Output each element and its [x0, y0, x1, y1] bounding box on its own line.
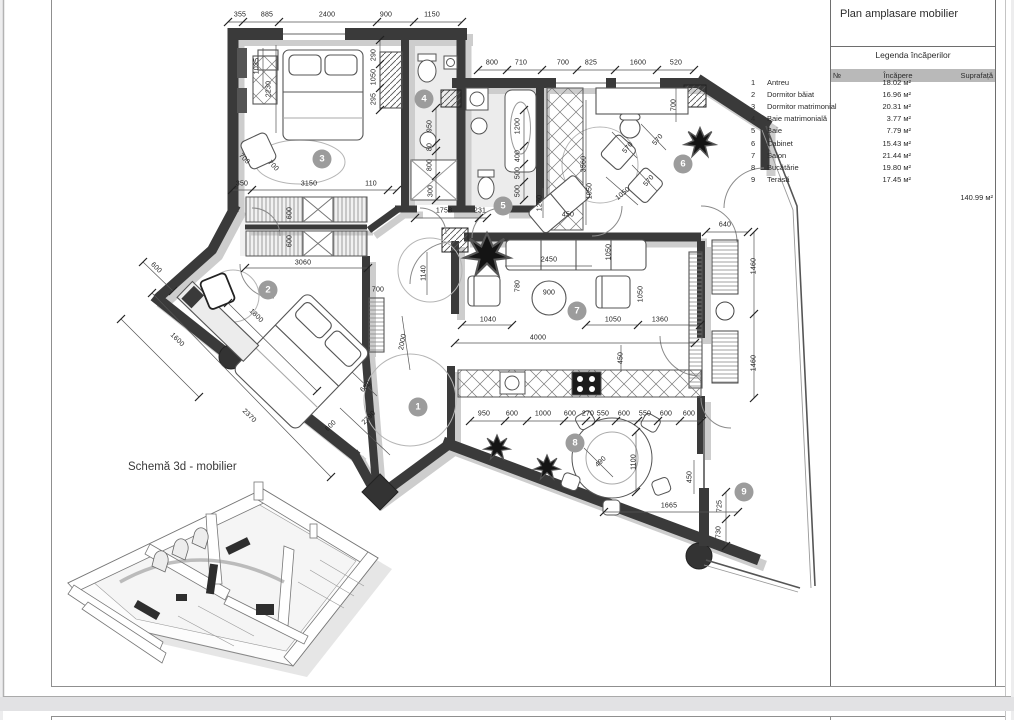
legend-row-area: 20.31 м² [865, 102, 911, 111]
legend-row: 8 Bucătărie 19.80 м² [749, 161, 913, 173]
legend-row-no: 1 [751, 78, 767, 87]
dimension-label: 1050 [638, 286, 645, 302]
dimension-label: 570 [642, 174, 655, 188]
legend-row: 4 Baie matrimonială 3.77 м² [749, 112, 913, 124]
schema-3d-label: Schemă 3d - mobilier [128, 461, 237, 473]
dimension-label: 600 [683, 411, 695, 418]
legend-row-name: Cabinet [767, 138, 865, 147]
dimension-label: 700 [372, 287, 384, 294]
dimension-label: 1050 [606, 244, 613, 260]
dimension-label: 1050 [371, 69, 378, 85]
dimension-label: 1050 [587, 183, 594, 199]
dimension-label: 2230 [266, 81, 273, 97]
dimension-label: 1040 [480, 317, 496, 324]
pdf-viewer-stage: Plan amplasare mobilier Legenda încăperi… [0, 0, 1014, 720]
legend-row-area: 18.02 м² [865, 78, 911, 87]
dimension-label: 450 [687, 471, 694, 483]
dimension-label: 350 [236, 181, 248, 188]
dimension-label: 2370 [241, 408, 258, 425]
dimension-label: 355 [234, 12, 246, 19]
dimension-label: 1140 [421, 265, 428, 281]
dimension-label: 80 [427, 143, 434, 151]
dimension-label: 1035 [254, 58, 261, 74]
sheet-title: Plan amplasare mobilier [840, 8, 958, 20]
room-number-marker: 4 [415, 90, 434, 109]
text-overlay: Plan amplasare mobilier Legenda încăperi… [0, 0, 1014, 720]
dimension-label: 110 [365, 181, 377, 188]
dimension-label: 2450 [541, 257, 557, 264]
dimension-label: 600 [618, 411, 630, 418]
legend-row-name: Baie matrimonială [767, 114, 865, 123]
dimension-label: 600 [324, 419, 338, 433]
legend-panel: Legenda încăperilor № Încăpere Suprafață… [831, 50, 995, 204]
legend-row-name: Salon [767, 151, 865, 160]
dimension-label: 730 [716, 526, 723, 538]
dimension-label: 1150 [424, 12, 440, 19]
dimension-label: 490 [594, 455, 608, 469]
legend-row-no: 8 [751, 163, 767, 172]
room-number-marker: 6 [674, 155, 693, 174]
legend-row: 1 Antreu 18.02 м² [749, 76, 913, 88]
dimension-label: 710 [515, 60, 527, 67]
dimension-label: 4000 [530, 335, 546, 342]
dimension-label: 680 [359, 380, 373, 394]
dimension-label: 300 [428, 185, 435, 197]
legend-row-name: Terasă [767, 175, 865, 184]
legend-row-no: 3 [751, 102, 767, 111]
dimension-label: 1460 [751, 355, 758, 371]
dimension-label: 700 [237, 152, 251, 166]
dimension-label: 600 [564, 411, 576, 418]
legend-row-name: Dormitor băiat [767, 90, 865, 99]
dimension-label: 500 [515, 167, 522, 179]
dimension-label: 570 [651, 133, 664, 147]
dimension-label: 3060 [295, 260, 311, 267]
dimension-label: 1280 [537, 195, 544, 211]
dimension-label: 2400 [319, 12, 335, 19]
dimension-label: 1758 [436, 208, 452, 215]
legend-col-area: Suprafață [947, 71, 993, 80]
dimension-label: 1600 [169, 332, 186, 349]
legend-row-name: Baie [767, 126, 865, 135]
dimension-label: 270 [582, 411, 594, 418]
dimension-label: 900 [380, 12, 392, 19]
room-number-marker: 1 [409, 398, 428, 417]
dimension-label: 400 [515, 150, 522, 162]
room-number-marker: 8 [566, 434, 585, 453]
dimension-label: 450 [562, 212, 574, 219]
room-number-marker: 2 [259, 281, 278, 300]
dimension-label: 570 [621, 141, 634, 155]
legend-row-area: 17.45 м² [865, 175, 911, 184]
dimension-label: 2390 [361, 410, 378, 427]
legend-row-area: 16.96 м² [865, 90, 911, 99]
legend-row-area: 21.44 м² [865, 151, 911, 160]
legend-subtitle: Legenda încăperilor [831, 50, 995, 60]
dimension-label: 885 [261, 12, 273, 19]
dimension-label: 825 [585, 60, 597, 67]
dimension-label: 900 [543, 290, 555, 297]
legend-row-name: Antreu [767, 78, 865, 87]
legend-row-no: 5 [751, 126, 767, 135]
legend-row: 5 Baie 7.79 м² [749, 125, 913, 137]
legend-row: 3 Dormitor matrimonial 20.31 м² [749, 100, 913, 112]
dimension-label: 1000 [535, 411, 551, 418]
legend-row-area: 15.43 м² [865, 138, 911, 147]
legend-row-no: 9 [751, 175, 767, 184]
dimension-label: 700 [671, 99, 678, 111]
legend-row-no: 4 [751, 114, 767, 123]
legend-row-no: 6 [751, 138, 767, 147]
legend-total-value: 140.99 м² [947, 193, 993, 202]
dimension-label: 1460 [751, 258, 758, 274]
legend-row-area: 19.80 м² [865, 163, 911, 172]
dimension-label: 3150 [301, 181, 317, 188]
dimension-label: 700 [266, 159, 280, 173]
legend-total-row: 140.99 м² [831, 192, 995, 204]
legend-row: 9 Terasă 17.45 м² [749, 173, 913, 185]
dimension-label: 450 [618, 352, 625, 364]
dimension-label: 780 [515, 280, 522, 292]
legend-row-area: 7.79 м² [865, 126, 911, 135]
dimension-label: 640 [719, 222, 731, 229]
room-number-marker: 3 [313, 150, 332, 169]
dimension-label: 550 [597, 411, 609, 418]
dimension-label: 1800 [248, 308, 265, 325]
dimension-label: 550 [639, 411, 651, 418]
dimension-label: 700 [557, 60, 569, 67]
dimension-label: 3560 [581, 156, 588, 172]
legend-row: 7 Salon 21.44 м² [749, 149, 913, 161]
legend-row-area: 3.77 м² [865, 114, 911, 123]
dimension-label: 950 [427, 120, 434, 132]
dimension-label: 290 [371, 49, 378, 61]
dimension-label: 1600 [630, 60, 646, 67]
dimension-label: 600 [287, 207, 294, 219]
dimension-label: 600 [287, 235, 294, 247]
dimension-label: 500 [515, 185, 522, 197]
dimension-label: 1360 [652, 317, 668, 324]
dimension-label: 950 [478, 411, 490, 418]
dimension-label: 600 [149, 261, 163, 275]
legend-row: 2 Dormitor băiat 16.96 м² [749, 88, 913, 100]
legend-row-name: Dormitor matrimonial [767, 102, 865, 111]
dimension-label: 1050 [614, 186, 631, 202]
legend-row: 6 Cabinet 15.43 м² [749, 137, 913, 149]
room-number-marker: 7 [568, 302, 587, 321]
room-number-marker: 5 [494, 197, 513, 216]
dimension-label: 1050 [605, 317, 621, 324]
legend-row-name: Bucătărie [767, 163, 865, 172]
dimension-label: 800 [427, 159, 434, 171]
dimension-label: 800 [486, 60, 498, 67]
dimension-label: 725 [717, 500, 724, 512]
dimension-label: 2000 [398, 333, 408, 350]
dimension-label: 520 [670, 60, 682, 67]
legend-row-no: 2 [751, 90, 767, 99]
dimension-label: 231 [474, 208, 486, 215]
dimension-label: 1665 [661, 503, 677, 510]
dimension-label: 1200 [515, 118, 522, 134]
dimension-label: 600 [660, 411, 672, 418]
legend-row-no: 7 [751, 151, 767, 160]
dimension-label: 295 [371, 93, 378, 105]
room-number-marker: 9 [735, 483, 754, 502]
dimension-label: 1100 [631, 454, 638, 470]
dimension-label: 600 [506, 411, 518, 418]
